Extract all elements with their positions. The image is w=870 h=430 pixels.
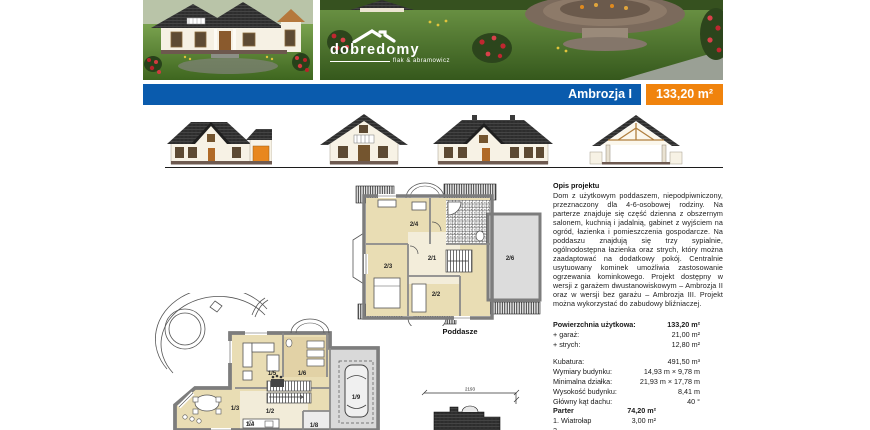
floor-room-list: Parter 74,20 m² 1. Wiatrołap 3,00 m² 2. [553, 406, 656, 430]
dobredomy-roof-icon [352, 28, 396, 43]
spec-value: 21,00 m² [672, 330, 700, 340]
catalog-page: dobredomy flak & abramowicz Ambrozja I 1… [0, 0, 870, 430]
brand-rule [330, 61, 390, 62]
room-area: 3,00 m² [632, 416, 656, 426]
floor-area: 74,20 m² [627, 406, 656, 416]
floor-room-row: 1. Wiatrołap 3,00 m² [553, 416, 656, 426]
attic-room-label: 2/4 [410, 222, 419, 228]
attic-plan-caption: Poddasze [380, 327, 540, 336]
spec-row-min-plot: Minimalna działka: 21,93 m × 17,78 m [553, 377, 700, 387]
spec-row-garage: + garaż: 21,00 m² [553, 330, 700, 340]
roof-outline-drawing: 2193 [418, 382, 522, 430]
elevation-front-drawing [166, 112, 272, 168]
spec-label: + strych: [553, 340, 580, 350]
dobredomy-logo: dobredomy flak & abramowicz [330, 28, 450, 64]
ground-room-label: 1/3 [231, 406, 240, 412]
house-photo-front [143, 0, 313, 80]
description-body: Dom z użytkowym poddaszem, niepodpiwnicz… [553, 191, 723, 308]
attic-room-label: 2/6 [506, 256, 515, 262]
specs-main: Powierzchnia użytkowa: 133,20 m² + garaż… [553, 320, 700, 350]
elevation-side-right-drawing [588, 112, 684, 168]
attic-room-label: 2/3 [384, 264, 393, 270]
spec-label: Kubatura: [553, 357, 584, 367]
elevation-side-left-drawing [316, 112, 412, 168]
brand-tagline: flak & abramowicz [393, 58, 450, 64]
spec-value: 40 ° [687, 397, 700, 407]
floor-room-row: 2. [553, 426, 656, 430]
attic-room-label: 2/1 [428, 256, 437, 262]
spec-value: 14,93 m × 9,78 m [644, 367, 700, 377]
garden-photo: dobredomy flak & abramowicz [320, 0, 723, 80]
brand-name: dobredomy [330, 43, 450, 57]
specs-details: Kubatura: 491,50 m³ Wymiary budynku: 14,… [553, 357, 700, 407]
spec-value: 21,93 m × 17,78 m [640, 377, 700, 387]
ground-room-label: 1/5 [268, 371, 277, 377]
spec-row-dimensions: Wymiary budynku: 14,93 m × 9,78 m [553, 367, 700, 377]
floor-title-row: Parter 74,20 m² [553, 406, 656, 416]
ground-room-label: 1/6 [298, 371, 307, 377]
ground-room-label: 1/4 [246, 422, 255, 428]
project-title-banner: Ambrozja I [143, 84, 641, 105]
spec-label: Powierzchnia użytkowa: [553, 320, 636, 330]
spec-row-volume: Kubatura: 491,50 m³ [553, 357, 700, 367]
ground-room-label: 1/2 [266, 409, 275, 415]
area-badge: 133,20 m² [646, 84, 723, 105]
spec-value: 491,50 m³ [668, 357, 700, 367]
spec-label: Minimalna działka: [553, 377, 612, 387]
spec-label: + garaż: [553, 330, 579, 340]
spec-value: 12,80 m² [672, 340, 700, 350]
spec-row-attic-storage: + strych: 12,80 m² [553, 340, 700, 350]
attic-room-label: 2/2 [432, 292, 441, 298]
spec-label: Wymiary budynku: [553, 367, 612, 377]
spec-row-height: Wysokość budynku: 8,41 m [553, 387, 700, 397]
ground-floor-plan: 1/2 1/3 1/4 1/5 1/6 1/8 1/9 [155, 293, 385, 430]
spec-value: 133,20 m² [667, 320, 700, 330]
ground-room-label: 1/8 [310, 423, 319, 429]
elevations-ground-line [165, 167, 723, 168]
roof-width-dimension: 2193 [465, 387, 476, 392]
spec-label: Wysokość budynku: [553, 387, 617, 397]
floor-title: Parter [553, 406, 574, 416]
spec-row-usable-area: Powierzchnia użytkowa: 133,20 m² [553, 320, 700, 330]
room-name: 2. [553, 426, 559, 430]
ground-room-label: 1/9 [352, 395, 361, 401]
room-name: 1. Wiatrołap [553, 416, 591, 426]
spec-value: 8,41 m [678, 387, 700, 397]
elevation-rear-drawing [432, 112, 554, 168]
description-heading: Opis projektu [553, 181, 723, 190]
brand-tagline-row: flak & abramowicz [330, 58, 450, 64]
